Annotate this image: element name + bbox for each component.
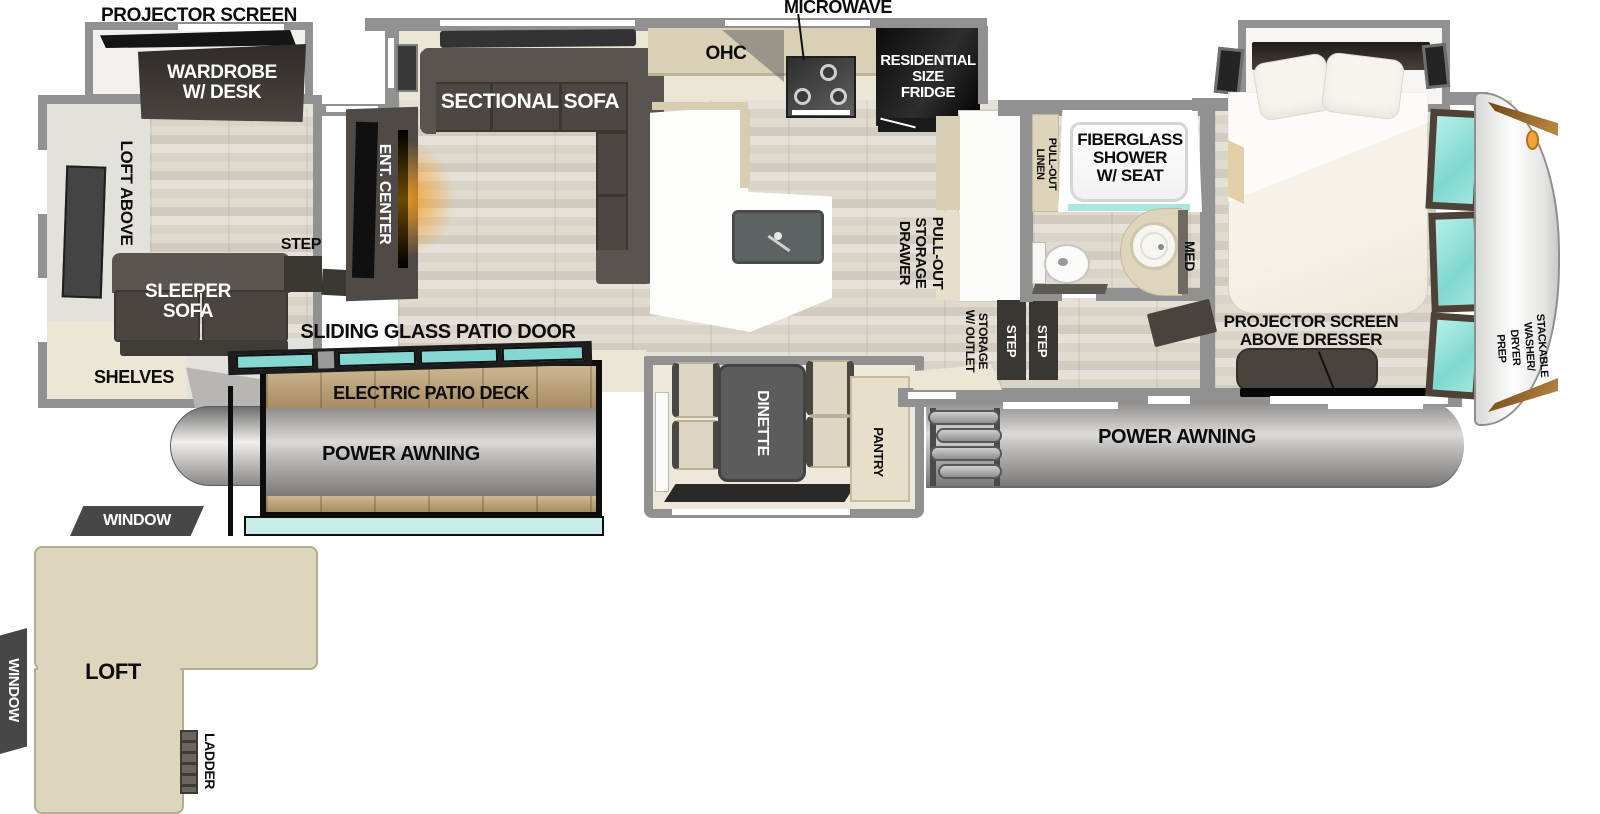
pull-out-linen-label: PULL-OUT LINEN [1032,123,1058,205]
dinette-chair [672,362,720,418]
toilet-drain-icon [1058,258,1068,266]
fireplace-icon [398,130,408,268]
entry-step [936,428,1002,443]
projector-above-dresser-label: PROJECTOR SCREEN ABOVE DRESSER [1211,312,1411,350]
window-strip [440,20,635,26]
wall-segment [978,26,988,104]
pullout-storage-drawer-label: PULL-OUT STORAGE DRAWER [894,197,946,309]
patio-deck-wood-lower [266,496,596,512]
sectional-sofa-label: SECTIONAL SOFA [430,88,630,116]
ohc-label: OHC [700,44,752,64]
wardrobe-desk-label: WARDROBE W/ DESK [138,44,306,122]
bath-faucet-icon [1158,244,1164,250]
ladder-icon [180,730,198,794]
ent-center-label: ENT. CENTER [375,119,393,269]
bed-blanket-edge [1228,140,1244,204]
door-glass-panel [502,345,584,362]
entry-step [938,464,1002,479]
awning-rail-strip [1003,402,1118,409]
projector-screen-top-label: PROJECTOR SCREEN [89,4,309,28]
fireplace-glow-icon [404,140,456,258]
window-top-label: WINDOW [70,506,204,536]
deck-post [228,386,233,536]
loft-above-label: LOFT ABOVE [116,123,136,263]
step-block [284,256,322,292]
stove-burner-icon [830,88,847,105]
window-strip [1148,396,1190,404]
stove-icon [786,56,856,118]
microwave-label: MICROWAVE [775,0,901,16]
loft-area-lower [34,668,184,814]
dinette-chair [806,416,854,468]
deck-rail [244,516,604,536]
front-window-strip-1 [38,150,47,214]
counter-edge [652,102,748,110]
step-v2-label: STEP [1034,310,1050,372]
door-handle-block [318,351,334,368]
stackable-washer-dryer-prep-label: STACKABLE WASHER/ DRYER PREP [1489,302,1553,392]
storage-w-outlet-label: STORAGE W/ OUTLET [961,297,991,385]
bath-right-wall [1200,108,1215,400]
shelves-label: SHELVES [84,366,184,388]
wall-projector-screen-icon [62,165,107,298]
stove-front-strip [792,110,850,115]
bed-window-icon [1214,47,1245,95]
drawer-edge [936,116,960,210]
sofa-window-icon [440,29,636,48]
entry-step [930,446,1002,461]
door-glass-panel [420,348,498,365]
counter-edge [740,110,750,188]
electric-patio-deck-label: ELECTRIC PATIO DECK [266,382,596,404]
window-strip [672,509,850,515]
entry-step [928,410,1000,425]
door-glass-panel [338,350,416,367]
door-glass-panel [236,353,314,370]
loft-area-upper [34,546,318,670]
pantry-label: PANTRY [870,415,886,489]
dresser [1236,348,1378,392]
dinette-window-strip [655,392,669,492]
window-strip [1270,396,1448,404]
med-label: MED [1182,228,1198,284]
stove-burner-icon [794,88,811,105]
dinette-mat [664,484,856,502]
loft-label: LOFT [63,658,163,686]
sectional-cushions-right [596,132,628,254]
rv-floorplan-canvas: WARDROBE W/ DESK SLEEPER SOFA SHELVES LO… [0,0,1600,814]
ladder-label: LADDER [202,717,218,805]
bath-mat [1032,284,1108,294]
cap-handle-icon [1526,130,1539,150]
window-strip [388,38,394,88]
side-window-icon [396,44,418,92]
sleeper-sofa-label: SLEEPER SOFA [118,282,258,322]
power-awning-right-label: POWER AWNING [1040,424,1314,450]
pullout-drawer-unit [958,110,1022,302]
window-left-label: WINDOW [0,629,26,751]
bed-window-icon [1422,43,1450,89]
stove-burner-icon [820,64,837,81]
step-v1-label: STEP [1003,310,1019,372]
dinette-label: DINETTE [753,371,771,475]
step-front-label: STEP [270,236,332,254]
door-threshold [908,392,956,399]
dinette-chair [806,360,854,416]
power-awning-left-label: POWER AWNING [266,442,536,466]
awning-tube-left [170,406,264,486]
front-window-strip-2 [38,278,47,342]
shower-label: FIBERGLASS SHOWER W/ SEAT [1058,116,1202,200]
pillow-icon [1321,51,1406,120]
sliding-door-label: SLIDING GLASS PATIO DOOR [288,322,588,342]
dinette-chair [672,420,720,470]
